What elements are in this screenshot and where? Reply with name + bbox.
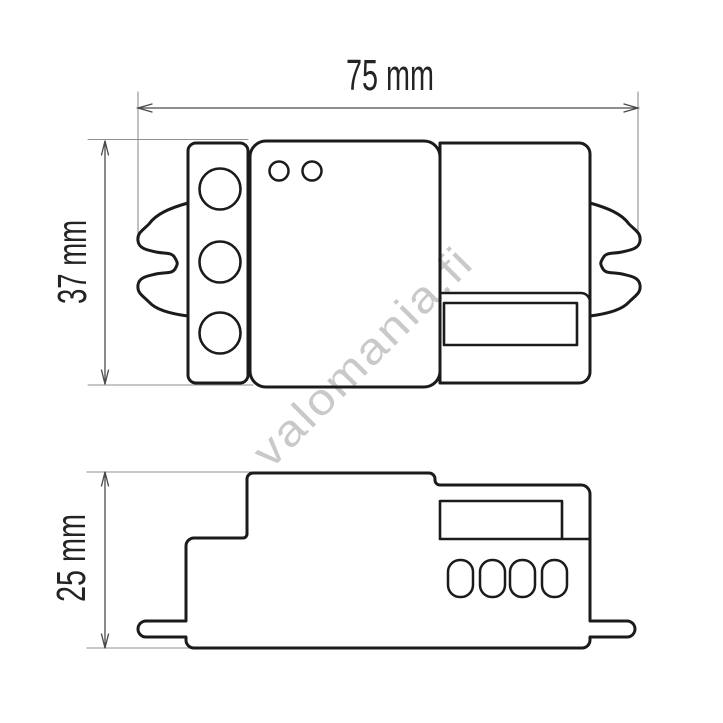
left-mounting-wing (138, 203, 188, 316)
terminal-hole (200, 169, 241, 210)
side-opening (480, 560, 505, 597)
cover-hole (270, 162, 289, 181)
right-mounting-wing (590, 203, 640, 316)
product-dimension-diagram: 75 mm 37 mm 25 mm valomania.fi (0, 0, 723, 723)
height-top-view-label: 37 mm (49, 220, 95, 304)
side-view-drawing (138, 473, 635, 648)
side-opening (542, 560, 567, 597)
height-side-view-label: 25 mm (48, 514, 94, 602)
terminal-hole (200, 242, 241, 283)
terminal-hole (200, 313, 241, 354)
side-opening (448, 560, 473, 597)
cover-hole (303, 162, 322, 181)
side-opening (510, 560, 535, 597)
label-slot (444, 303, 577, 345)
width-dimension-label: 75 mm (346, 51, 434, 100)
